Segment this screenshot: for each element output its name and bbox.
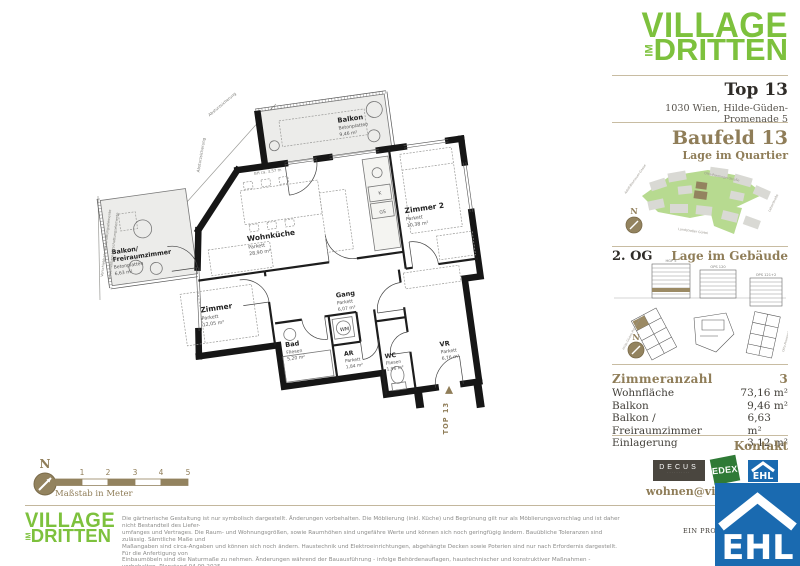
ehl-logo-large: EHL [715,483,800,566]
stat-row: Balkon9,46 m² [612,400,788,413]
building-elevations: HGP 5 OPS 120 OPS 121+2 [612,258,788,308]
decus-logo: DECUS ·········· [653,460,705,481]
label-wm: WM [340,326,350,333]
entry-arrow-icon [445,386,453,394]
brand-im: IM [645,44,656,56]
svg-text:AR: AR [344,350,355,358]
divider [612,364,788,365]
svg-text:EHL: EHL [722,528,794,566]
svg-text:Otto-Preminger-Straße: Otto-Preminger-Straße [781,318,788,352]
edex-logo: EDEX [710,455,740,485]
annotation-absturzsicherung-1: Absturzsicherung [207,91,237,118]
svg-text:5: 5 [186,468,191,477]
unit-stats: Zimmeranzahl3 Wohnfläche73,16 m² Balkon9… [612,371,788,450]
scale-bar: N 1 2 3 4 5 Maßstab in Meter [34,457,191,499]
stat-row: Balkon / Freiraumzimmer6,63 m² [612,412,788,437]
annotation-absturzsicherung-2: Absturzsicherung [195,137,206,173]
svg-text:OPS 120: OPS 120 [710,265,726,269]
baufeld-title: Baufeld 13 [612,127,788,149]
scale-caption: Maßstab in Meter [55,489,134,499]
stat-row: Zimmeranzahl3 [612,371,788,387]
unit-title: Top 13 [612,80,788,100]
divider [612,246,788,247]
svg-text:OPS 121+2: OPS 121+2 [756,273,777,277]
stat-row: Wohnfläche73,16 m² [612,387,788,400]
svg-text:HGP 5: HGP 5 [665,259,676,263]
footer-divider [25,505,775,506]
divider [612,75,788,76]
label-gs: GS [379,209,386,216]
svg-text:Leberstraße: Leberstraße [767,193,779,212]
svg-text:2: 2 [106,468,111,477]
north-label: N [40,457,51,471]
entry-wall-stub [473,381,485,408]
divider [612,122,788,123]
quartier-north-label: N [630,206,637,216]
brand-line1: VILLAGE [612,10,788,39]
svg-text:Landstraßer Gürtel: Landstraßer Gürtel [678,227,709,235]
gebaeude-north-label: N [632,332,639,342]
floor-plates: Hilde-Güden-Promenade Otto-Preminger-Str… [612,306,788,362]
scale-ticks: 1 2 3 4 5 [80,468,191,477]
svg-text:1: 1 [80,468,85,477]
svg-text:4: 4 [159,468,164,477]
brand-logo: VILLAGE IMDRITTEN [612,10,788,63]
top13-label: TOP 13 [442,402,450,434]
svg-text:EHL: EHL [753,471,774,482]
floorplan-sheet: Balkon Betonplatten 9,46 m² Balkon/ Frei… [0,0,800,566]
top13-marker: TOP 13 [436,385,460,436]
legal-disclaimer: Die gärtnerische Gestaltung ist nur symb… [122,516,620,566]
kontakt-title: Kontakt [612,439,788,453]
footer-brand-logo: VILLAGE IMDRITTEN [25,512,115,545]
ehl-logo-small: EHL [748,460,778,482]
quartier-map: Adolf-Blamauer-Gasse Otto-Preminger-Stra… [612,160,788,244]
svg-text:Adolf-Blamauer-Gasse: Adolf-Blamauer-Gasse [624,163,647,194]
svg-text:VR: VR [439,339,450,348]
floor-plan: Balkon Betonplatten 9,46 m² Balkon/ Frei… [0,0,612,505]
divider [612,435,788,436]
svg-text:3: 3 [133,468,138,477]
highlighted-floor [652,288,690,292]
